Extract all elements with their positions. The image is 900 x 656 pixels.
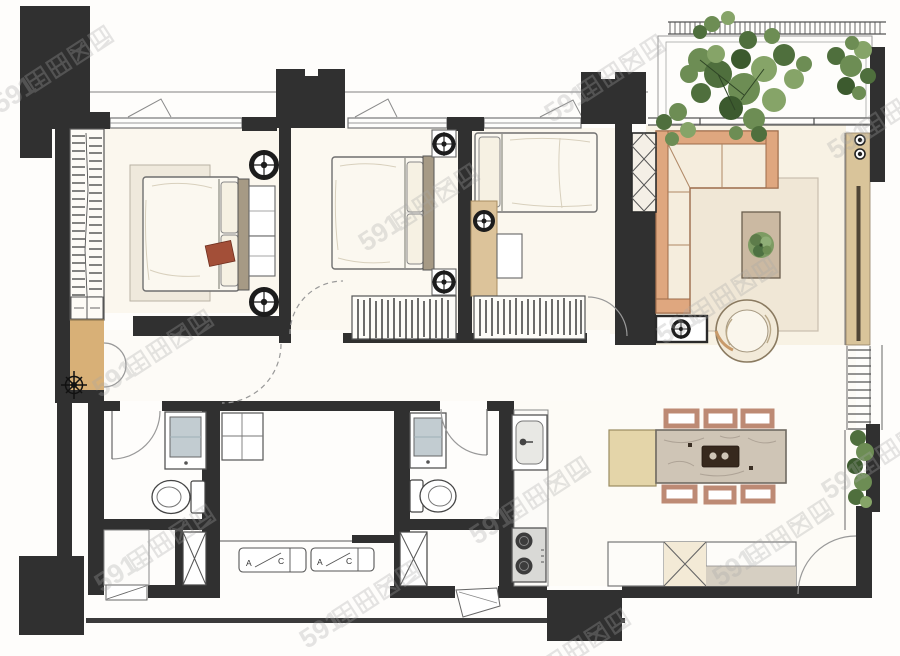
- svg-text:A: A: [317, 557, 323, 567]
- svg-text:C: C: [346, 556, 352, 566]
- svg-text:C: C: [278, 556, 284, 566]
- svg-text:A: A: [246, 558, 252, 568]
